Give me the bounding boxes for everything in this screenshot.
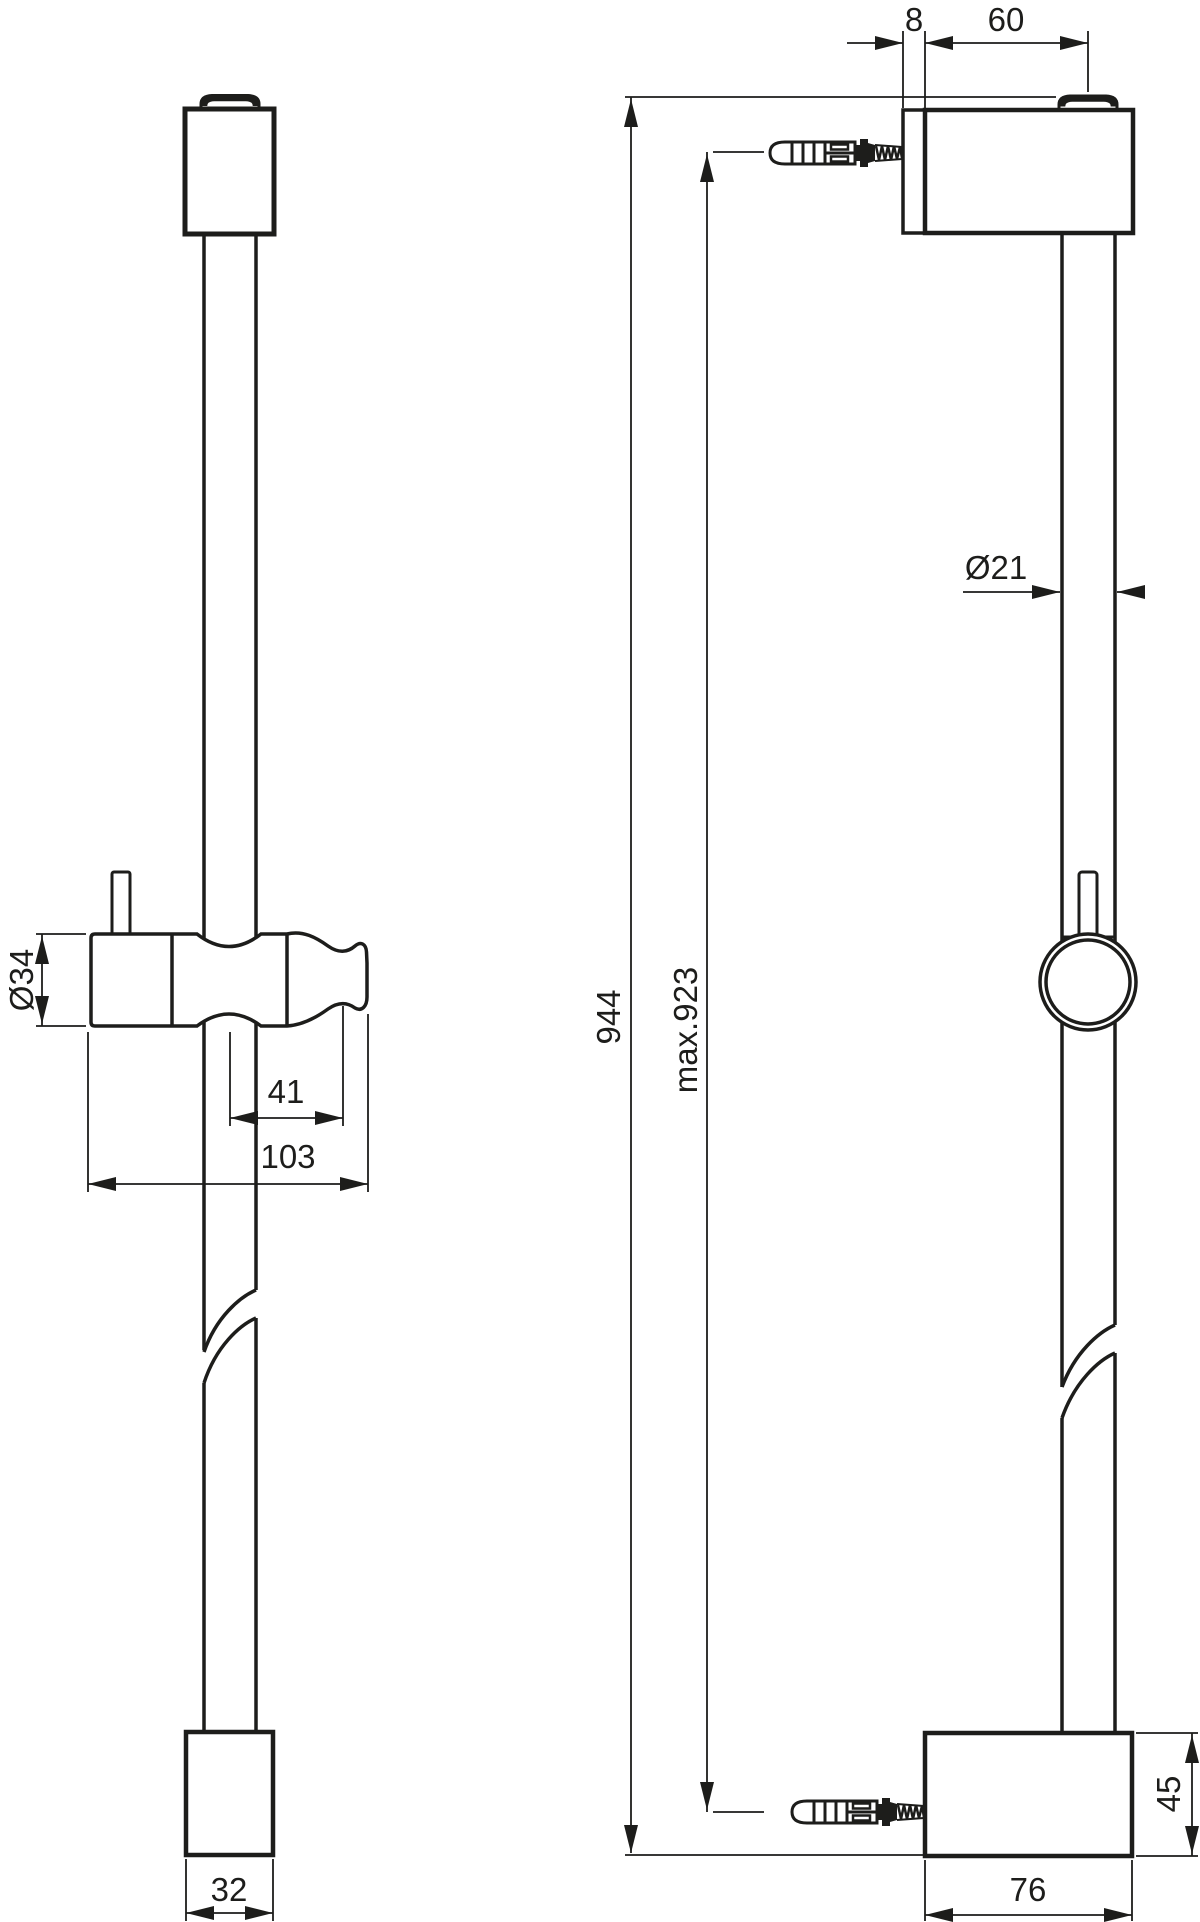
- front-top-box: [185, 109, 274, 234]
- dimension-holder-length: 103: [88, 1014, 368, 1192]
- dimension-slider-diameter: Ø34: [3, 934, 86, 1026]
- tube-break-line: [204, 1318, 256, 1383]
- dim-label-holder-length: 103: [260, 1138, 315, 1175]
- dim-label-slider-diameter: Ø34: [3, 949, 40, 1011]
- front-slider-pin: [112, 872, 130, 936]
- dim-label-max-hole-distance: max.923: [667, 967, 704, 1094]
- dimension-overall-height: 944: [590, 97, 1056, 1855]
- side-bottom-bracket: [925, 1733, 1132, 1856]
- dimension-plate-thickness: 8: [847, 1, 925, 108]
- dim-label-bottom-cap-width: 32: [211, 1871, 248, 1908]
- side-view: 8 60 Ø21 944 max.923: [590, 1, 1199, 1922]
- tube-break-line: [1062, 1353, 1115, 1418]
- dim-label-plate-thickness: 8: [905, 1, 923, 38]
- side-slider: [1040, 872, 1136, 1030]
- side-top-bracket: [925, 110, 1133, 233]
- dim-label-bracket-depth: 60: [988, 1, 1025, 38]
- front-bottom-cap: [186, 1732, 273, 1855]
- dimension-bracket-depth: 60: [925, 1, 1088, 92]
- dim-label-overall-height: 944: [590, 989, 627, 1044]
- technical-drawing-page: Ø34 41 103 32: [0, 0, 1200, 1922]
- wall-plug-icon-top: [770, 139, 902, 167]
- dimension-bottom-bracket-height: 45: [1136, 1733, 1199, 1856]
- dimension-rail-diameter: Ø21: [963, 549, 1145, 599]
- dim-label-bottom-bracket-depth: 76: [1010, 1871, 1047, 1908]
- front-view: Ø34 41 103 32: [3, 96, 368, 1922]
- side-slider-pin: [1079, 872, 1097, 938]
- dim-label-bottom-bracket-height: 45: [1150, 1776, 1187, 1813]
- dimension-bottom-cap-width: 32: [186, 1859, 273, 1921]
- wall-plug-icon-bottom: [792, 1798, 924, 1826]
- side-slider-knob-outer: [1040, 934, 1136, 1030]
- front-slider-body: [91, 933, 367, 1026]
- dimension-max-hole-distance: max.923: [667, 152, 764, 1812]
- side-top-wall-plate: [903, 110, 925, 233]
- dim-label-rail-diameter: Ø21: [965, 549, 1027, 586]
- dimension-bottom-bracket-depth: 76: [925, 1860, 1132, 1922]
- dim-label-holder-offset: 41: [268, 1073, 305, 1110]
- technical-drawing: Ø34 41 103 32: [0, 0, 1200, 1922]
